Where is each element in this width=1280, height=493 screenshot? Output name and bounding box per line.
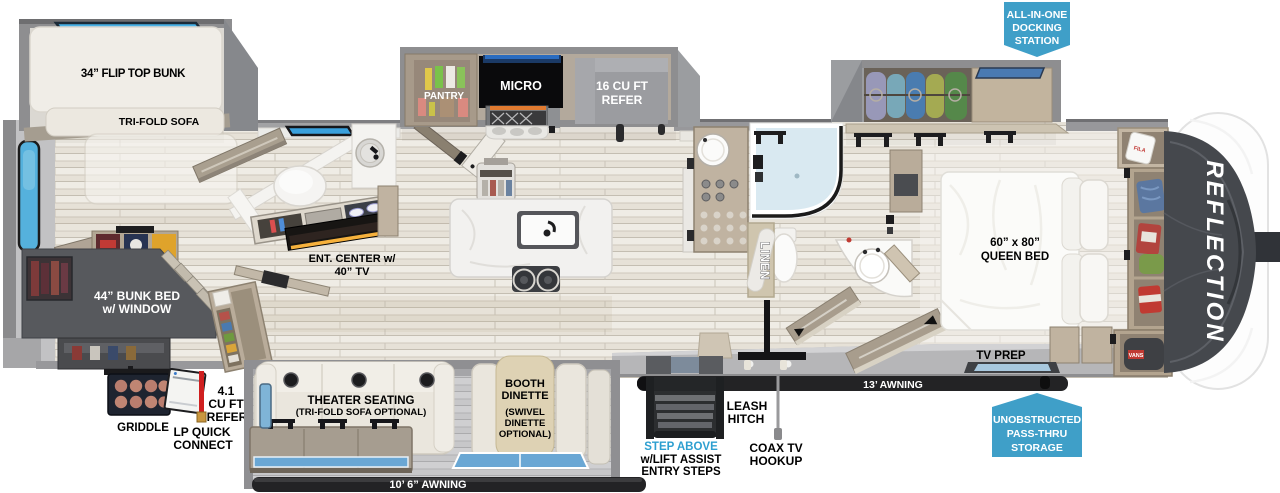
svg-text:DINETTE: DINETTE [501,390,548,402]
svg-text:GRIDDLE: GRIDDLE [117,422,169,434]
svg-text:UNOBSTRUCTED: UNOBSTRUCTED [993,414,1081,426]
svg-text:ENT. CENTER w/: ENT. CENTER w/ [309,253,396,265]
svg-text:PASS-THRU: PASS-THRU [1007,428,1067,440]
svg-text:ALL-IN-ONE: ALL-IN-ONE [1007,9,1068,21]
svg-text:w/ WINDOW: w/ WINDOW [102,302,172,316]
svg-text:(SWIVEL: (SWIVEL [505,407,545,418]
svg-text:LEASH: LEASH [727,399,768,413]
svg-text:PANTRY: PANTRY [424,91,464,102]
svg-text:LP QUICK: LP QUICK [173,425,230,439]
svg-text:MICRO: MICRO [500,79,542,93]
svg-text:QUEEN BED: QUEEN BED [981,251,1049,263]
svg-text:44” BUNK BED: 44” BUNK BED [94,289,180,303]
svg-text:DINETTE: DINETTE [505,418,546,429]
svg-text:VANS: VANS [1129,353,1144,359]
svg-text:BOOTH: BOOTH [505,378,545,390]
svg-text:34” FLIP TOP BUNK: 34” FLIP TOP BUNK [81,68,186,80]
svg-text:DOCKING: DOCKING [1012,22,1062,34]
svg-text:STEP ABOVE: STEP ABOVE [644,441,718,453]
svg-text:CU FT: CU FT [208,397,244,411]
svg-text:STORAGE: STORAGE [1011,442,1063,454]
svg-text:60” x 80”: 60” x 80” [990,237,1040,249]
svg-text:STATION: STATION [1015,35,1060,47]
svg-text:TRI-FOLD SOFA: TRI-FOLD SOFA [119,116,200,128]
svg-text:10’ 6” AWNING: 10’ 6” AWNING [389,479,466,491]
svg-text:40” TV: 40” TV [335,266,371,278]
svg-text:COAX TV: COAX TV [749,441,802,455]
svg-text:THEATER SEATING: THEATER SEATING [308,395,415,407]
svg-text:w/LIFT ASSIST: w/LIFT ASSIST [640,454,722,466]
svg-text:TV PREP: TV PREP [976,350,1026,362]
svg-text:OPTIONAL): OPTIONAL) [499,429,551,440]
svg-text:REFER: REFER [602,93,643,107]
svg-text:16 CU FT: 16 CU FT [596,79,649,93]
svg-text:REFER: REFER [207,410,248,424]
svg-text:CONNECT: CONNECT [173,438,233,452]
svg-text:LINEN: LINEN [758,242,770,281]
svg-text:HITCH: HITCH [728,412,765,426]
svg-text:(TRI-FOLD SOFA OPTIONAL): (TRI-FOLD SOFA OPTIONAL) [296,407,427,418]
svg-text:13’ AWNING: 13’ AWNING [863,379,923,391]
svg-text:4.1: 4.1 [218,384,235,398]
svg-text:ENTRY STEPS: ENTRY STEPS [641,466,721,478]
svg-text:HOOKUP: HOOKUP [750,454,803,468]
svg-text:REFLECTION: REFLECTION [1201,160,1228,343]
